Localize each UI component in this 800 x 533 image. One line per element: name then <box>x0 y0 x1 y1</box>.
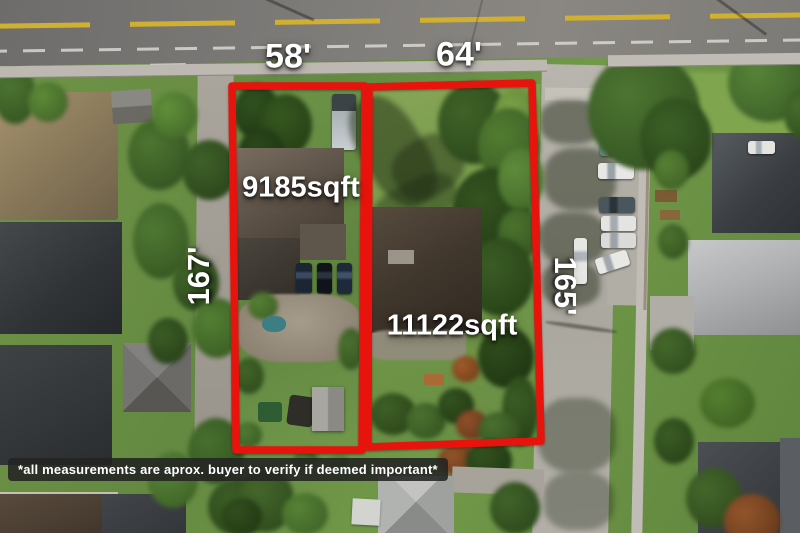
lot-outlines <box>0 0 800 533</box>
frontage-label-left: 58' <box>265 38 311 77</box>
disclaimer-banner: *all measurements are aprox. buyer to ve… <box>8 458 448 481</box>
frontage-label-right: 64' <box>436 36 482 75</box>
depth-label-right: 165' <box>547 256 583 315</box>
aerial-lot-photo: 58' 64' 9185sqft 11122sqft 167' 165' *al… <box>0 0 800 533</box>
area-label-left: 9185sqft <box>242 172 360 205</box>
lot-boundary-left <box>232 86 365 450</box>
area-label-right: 11122sqft <box>387 310 518 343</box>
depth-label-left: 167' <box>181 246 217 305</box>
lot-boundary-right <box>368 83 541 447</box>
